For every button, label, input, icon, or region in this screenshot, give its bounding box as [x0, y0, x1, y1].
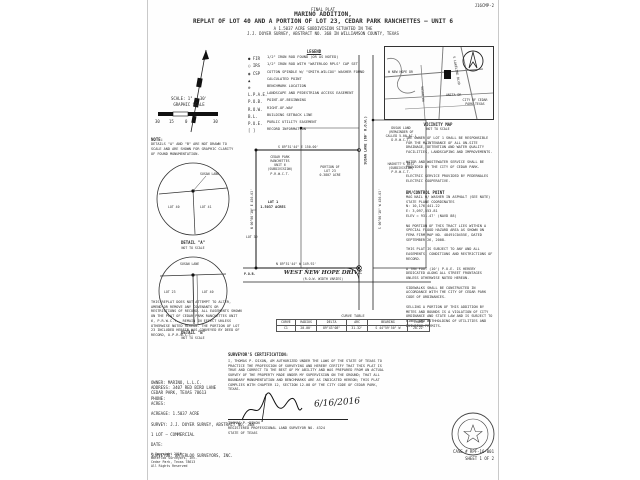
west-new-hope-row-label: (R.O.W. WIDTH VARIES) [268, 277, 378, 281]
general-notes-column: THE OWNER OF LOT 1 SHALL BE RESPONSIBLE … [406, 136, 494, 333]
note-paragraph-1: THE OWNER OF LOT 1 SHALL BE RESPONSIBLE … [406, 136, 494, 155]
detail-a-subcaption: NOT TO SCALE [154, 246, 232, 250]
curve-table-block: CURVE TABLE CURVE RADIUS DELTA ARC BEARI… [276, 314, 430, 332]
note-paragraph-7: SIDEWALKS SHALL BE CONSTRUCTED IN ACCORD… [406, 286, 494, 300]
scale-label: SCALE: 1" = 30' [153, 96, 225, 101]
west-new-hope-drive-label: WEST NEW HOPE DRIVE [268, 270, 378, 276]
north-arrow-icon [178, 40, 218, 136]
arc-cell: 31.32' [346, 325, 368, 331]
scale-tick-30l: 30 [155, 119, 160, 124]
site-location-marker [444, 70, 451, 79]
case-number: CASE # RPF-16-001 [428, 449, 494, 454]
title-block: FINAL PLAT MARINO ADDITION, REPLAT OF LO… [148, 7, 498, 36]
scale-tick-15: 15 [169, 119, 174, 124]
radius-cell: 20.00' [295, 325, 317, 331]
lot1-label: LOT 1 1.5037 ACRES [248, 200, 298, 209]
detail-a-lot40-label: LOT 40 [168, 205, 180, 209]
scale-tick-0: 0 [185, 119, 187, 124]
copyright-block: © Copyright 2016 Waterloo Surveyors, Inc… [151, 452, 241, 469]
bm-control-point-data: MAG NAIL W/ WASHER IN ASPHALT (SEE NOTE)… [406, 195, 494, 219]
sheet-number: SHEET 1 OF 2 [428, 456, 494, 461]
detail-b-lot23-label: LOT 23 [164, 290, 176, 294]
bearing-cell: S 44°59'50" W [368, 325, 408, 331]
replat-restrictions-note: THIS REPLAT DOES NOT ATTEMPT TO ALTER, A… [151, 300, 243, 338]
curve-table-row: C1 20.00' 89°43'08" 31.32' S 44°59'50" W… [277, 325, 430, 331]
detail-a-street-label: SUSAN LANE [200, 172, 219, 176]
detail-b-lot40-label: LOT 40 [202, 290, 214, 294]
scale-tick-30r: 30 [213, 119, 218, 124]
note-paragraph-2: WATER AND WASTEWATER SERVICE SHALL BE PR… [406, 160, 494, 169]
compass-icon [463, 51, 483, 71]
detail-a-lot41-label: LOT 41 [200, 205, 212, 209]
susan-lane-label: SUSAN LANE (60' R.O.W.) [364, 95, 369, 185]
bearing-left-label: N 00°08'16" E 436.63' [250, 169, 254, 249]
signature-date: 6/16/2016 [314, 396, 361, 409]
bearing-right-label: S 00°08'16" W 436.63' [378, 169, 382, 249]
chord-cell: 28.22' [408, 325, 430, 331]
plat-survey-line: J.J. DOYER SURVEY, ABSTRACT NO. 368 IN W… [148, 31, 498, 36]
graphic-scale-label: GRAPHIC SCALE [153, 102, 225, 107]
pob-label: P.O.B. [244, 272, 256, 276]
plat-subtitle: REPLAT OF LOT 40 AND A PORTION OF LOT 23… [148, 19, 498, 26]
scale-bar [156, 110, 222, 118]
lot23-portion-label: PORTION OF LOT 23 0.3807 ACRE [306, 165, 354, 177]
note-block: NOTE: DETAILS "A" AND "B" ARE NOT DRAWN … [151, 137, 239, 156]
owner-info-block: OWNER: MARINO, L.L.C. ADDRESS: 3407 RED … [151, 380, 263, 458]
certification-heading: SURVEYOR'S CERTIFICATION: [228, 352, 288, 357]
note-paragraph-3: ELECTRIC SERVICE PROVIDED BY PEDERNALES … [406, 174, 494, 183]
detail-a-caption: DETAIL "A" [154, 240, 232, 245]
detail-a-drawing [154, 160, 232, 238]
plat-sheet: J16CMP-2 FINAL PLAT MARINO ADDITION, REP… [147, 0, 499, 480]
bearing-bottom-label: N 89°51'44" W 149.92' [276, 262, 316, 266]
delta-cell: 89°43'08" [317, 325, 346, 331]
bearing-top-label: S 89°51'44" E 150.00' [278, 145, 318, 149]
curve-table: CURVE RADIUS DELTA ARC BEARING CHORD C1 … [276, 319, 430, 332]
vicinity-city-label: CITY OF CEDAR PARK TEXAS [460, 98, 490, 106]
note-text: DETAILS "A" AND "B" ARE NOT DRAWN TO SCA… [151, 142, 239, 156]
note-paragraph-6: A TEN FOOT (10') P.U.E. IS HEREBY DEDICA… [406, 267, 494, 281]
subdivision-label: CEDAR PARK RANCHETTES UNIT 6 (SUBDIVISIO… [256, 155, 304, 176]
scanned-plat-page: Doc.# 2016063602 J16CMP-2 FINAL PLAT MAR… [0, 0, 640, 480]
note-paragraph-4: NO PORTION OF THIS TRACT LIES WITHIN A S… [406, 224, 494, 243]
street-label-anita: ANITA DR [446, 93, 461, 97]
note-paragraph-5: THIS PLAT IS SUBJECT TO ANY AND ALL EASE… [406, 247, 494, 261]
curve-id-cell: C1 [277, 325, 296, 331]
detail-b-street-label: SUSAN LANE [180, 262, 199, 266]
